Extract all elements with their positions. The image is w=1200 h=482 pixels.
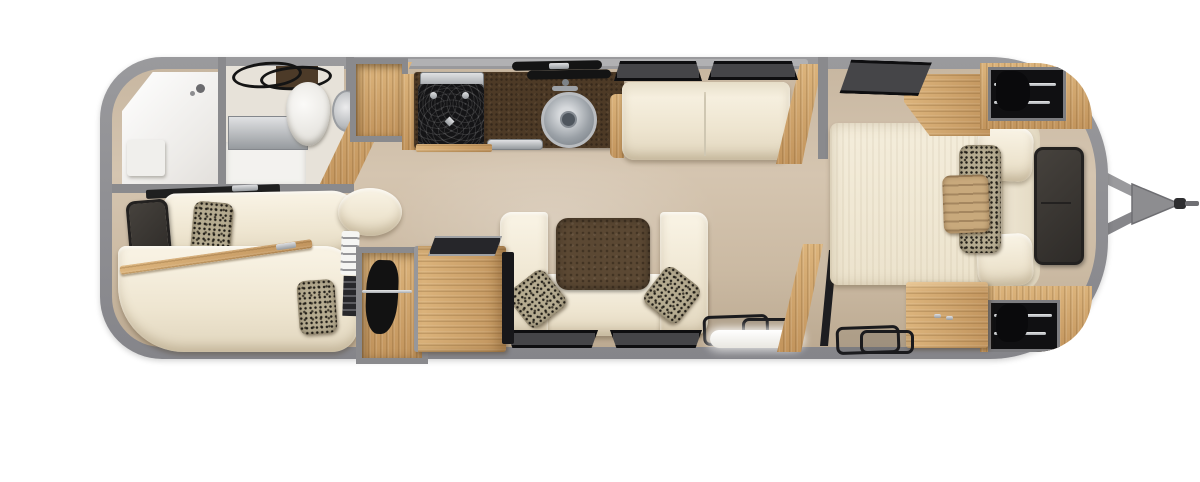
floorplan-stage	[0, 0, 1200, 482]
cabinet-dark-top	[428, 236, 502, 256]
tv-seam	[1041, 202, 1071, 204]
wall-shower	[218, 57, 226, 190]
tow-hitch	[1100, 156, 1200, 252]
window	[708, 61, 798, 80]
wardrobe-front-top	[980, 63, 1092, 129]
sofa	[622, 82, 790, 160]
lounge-pillow	[296, 279, 338, 336]
window	[614, 61, 702, 81]
appliance-panel	[502, 252, 514, 344]
window	[610, 330, 702, 348]
counter-front-edge	[416, 144, 492, 152]
closet-rail-icon	[362, 290, 412, 293]
shower-head-icon	[196, 84, 205, 93]
vent-slat-icon	[527, 69, 611, 79]
foot-dresser	[906, 282, 988, 348]
bed-pillow-tan	[942, 174, 990, 234]
floor-mat	[860, 330, 914, 354]
lounge-chaise-arm	[338, 188, 402, 236]
faucet-icon	[552, 86, 578, 91]
drawer-handle-icon	[946, 316, 953, 320]
burner-knob-icon	[430, 92, 437, 99]
gas-range	[418, 84, 484, 146]
lounge-shelf-chip	[232, 184, 258, 191]
drawer-handle-icon	[934, 314, 941, 318]
oven-handle	[487, 139, 543, 150]
hanging-clothes-icon	[996, 304, 1028, 342]
sink-drain-icon	[560, 111, 577, 128]
hanging-clothes-icon	[996, 71, 1030, 111]
storage-cubby	[350, 58, 408, 142]
wardrobe-front-bottom	[980, 286, 1092, 352]
shower-shelf	[127, 140, 165, 176]
dinette-table	[556, 218, 650, 290]
faucet-icon	[562, 79, 569, 86]
storage-cabinet	[414, 246, 506, 352]
wall-bedroom-divider	[818, 57, 828, 159]
bedroom-tv	[1034, 147, 1084, 265]
window	[506, 330, 598, 348]
vent-chip	[549, 63, 569, 69]
sofa-cushion-seam	[704, 92, 706, 156]
burner-knob-icon	[462, 92, 469, 99]
sofa-backrest	[622, 82, 790, 98]
